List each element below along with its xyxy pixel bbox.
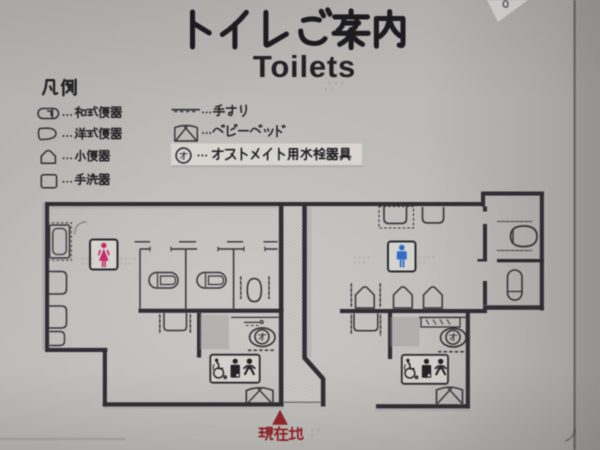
svg-text:Toilets: Toilets — [253, 49, 356, 84]
